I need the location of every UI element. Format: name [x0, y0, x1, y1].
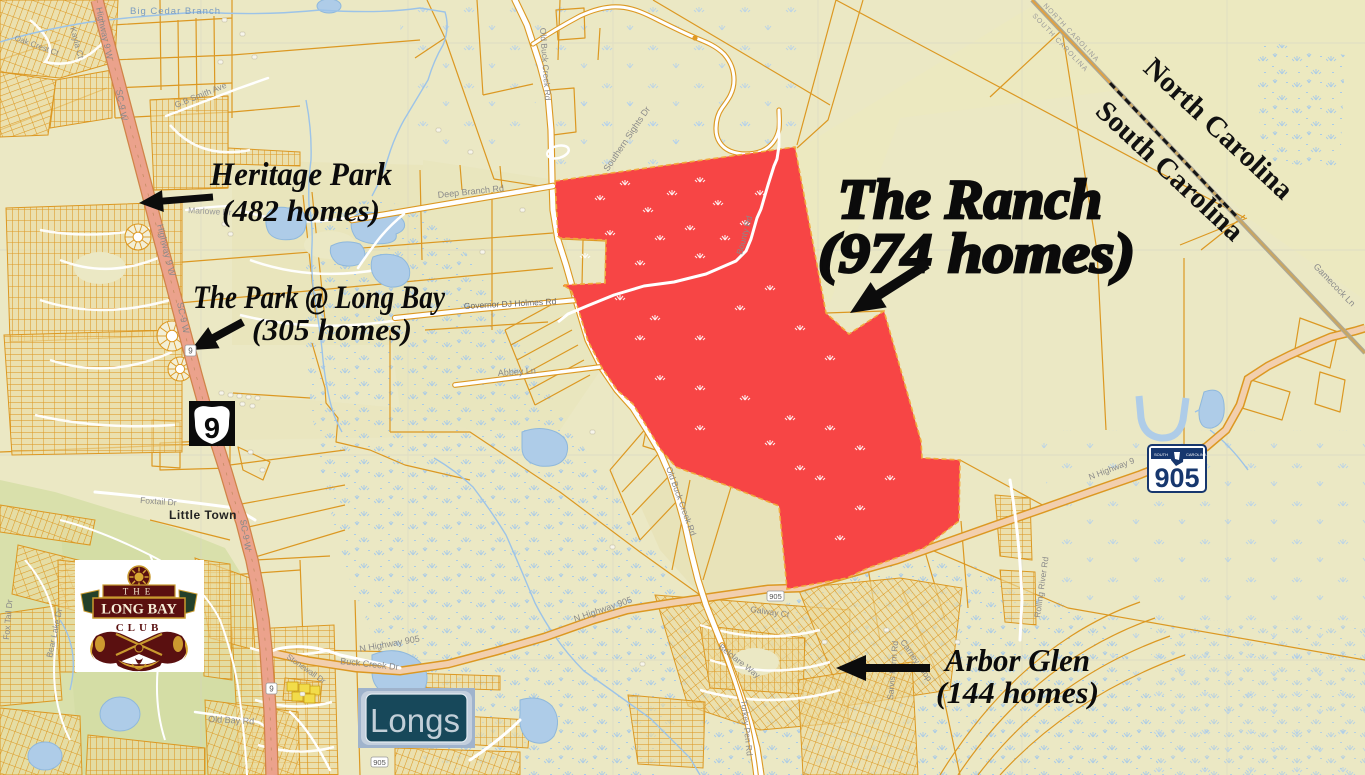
svg-text:905: 905 [1154, 463, 1199, 493]
svg-text:The Park @ Long Bay: The Park @ Long Bay [193, 280, 445, 316]
svg-text:905: 905 [769, 592, 782, 601]
svg-text:Longs: Longs [370, 702, 460, 739]
svg-text:CLUB: CLUB [116, 622, 163, 634]
svg-text:(144 homes): (144 homes) [936, 675, 1099, 710]
svg-text:CAROLINA: CAROLINA [1186, 452, 1207, 457]
svg-text:905: 905 [373, 758, 386, 767]
svg-text:Arbor Glen: Arbor Glen [943, 642, 1090, 678]
svg-text:Heritage Park: Heritage Park [209, 157, 392, 193]
svg-text:9: 9 [204, 413, 220, 445]
svg-text:(305 homes): (305 homes) [252, 312, 412, 347]
svg-text:(482 homes): (482 homes) [222, 193, 380, 228]
svg-text:THE: THE [123, 587, 156, 597]
svg-text:9: 9 [269, 685, 274, 694]
svg-text:9: 9 [188, 347, 193, 356]
svg-text:LONG BAY: LONG BAY [101, 602, 177, 618]
svg-text:Big Cedar Branch: Big Cedar Branch [130, 6, 221, 17]
svg-text:Little Town: Little Town [169, 508, 237, 522]
svg-text:SOUTH: SOUTH [1154, 452, 1168, 457]
svg-text:The Ranch: The Ranch [838, 169, 1102, 231]
svg-text:(974 homes): (974 homes) [818, 223, 1135, 285]
